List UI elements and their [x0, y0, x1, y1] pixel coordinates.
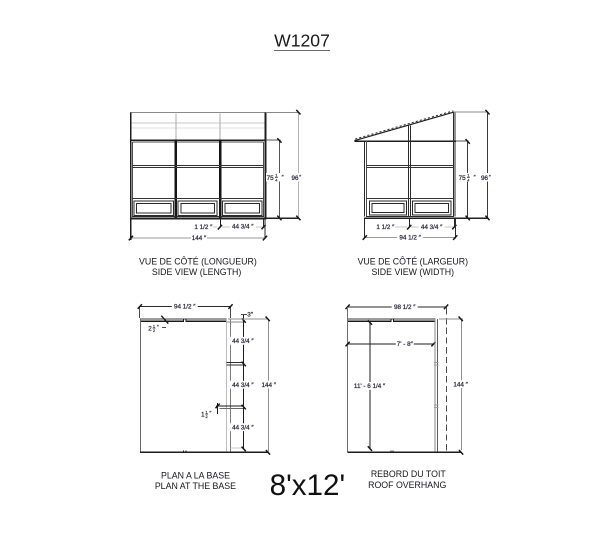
svg-text:11' - 6 1/4 ″: 11' - 6 1/4 ″: [354, 383, 386, 390]
svg-text:″: ″: [474, 175, 476, 181]
svg-text:″: ″: [299, 175, 301, 181]
svg-text:75: 75: [267, 175, 275, 182]
svg-text:2: 2: [148, 326, 152, 333]
svg-text:W1207: W1207: [274, 31, 330, 51]
svg-text:75: 75: [459, 175, 467, 182]
svg-text:96: 96: [481, 175, 489, 182]
svg-text:SIDE VIEW (LENGTH): SIDE VIEW (LENGTH): [152, 267, 242, 277]
svg-text:REBORD DU TOIT: REBORD DU TOIT: [371, 469, 447, 479]
svg-text:VUE DE CÔTÉ (LONGUEUR): VUE DE CÔTÉ (LONGUEUR): [139, 256, 257, 266]
svg-text:″: ″: [489, 175, 491, 181]
svg-text:1 1/2 ″: 1 1/2 ″: [194, 224, 213, 231]
svg-text:96: 96: [292, 175, 300, 182]
svg-text:7' - 8″: 7' - 8″: [397, 341, 414, 348]
svg-text:144 ″: 144 ″: [262, 382, 277, 389]
svg-text:VUE DE CÔTÉ (LARGEUR): VUE DE CÔTÉ (LARGEUR): [358, 256, 469, 266]
svg-text:144 ″: 144 ″: [453, 382, 468, 389]
svg-text:94 1/2 ″: 94 1/2 ″: [174, 304, 196, 311]
svg-text:3″: 3″: [247, 312, 254, 319]
svg-text:PLAN AT THE BASE: PLAN AT THE BASE: [155, 481, 236, 491]
svg-text:″: ″: [157, 325, 159, 331]
svg-text:SIDE VIEW (WIDTH): SIDE VIEW (WIDTH): [372, 267, 455, 277]
svg-text:ROOF OVERHANG: ROOF OVERHANG: [368, 480, 446, 490]
svg-text:1 1/2 ″: 1 1/2 ″: [376, 224, 395, 231]
svg-text:44 3/4 ″: 44 3/4 ″: [421, 224, 443, 231]
svg-text:44 3/4 ″: 44 3/4 ″: [232, 425, 254, 432]
svg-text:″: ″: [282, 175, 284, 181]
svg-text:98 1/2 ″: 98 1/2 ″: [394, 304, 416, 311]
svg-text:144 ″: 144 ″: [192, 235, 207, 242]
svg-text:44 3/4 ″: 44 3/4 ″: [232, 224, 254, 231]
svg-text:1: 1: [201, 412, 205, 419]
svg-text:44 3/4 ″: 44 3/4 ″: [232, 338, 254, 345]
svg-text:44 3/4 ″: 44 3/4 ″: [232, 382, 254, 389]
svg-text:94 1/2 ″: 94 1/2 ″: [399, 234, 421, 241]
svg-text:″: ″: [209, 411, 211, 417]
svg-text:PLAN A LA BASE: PLAN A LA BASE: [161, 470, 230, 480]
svg-text:8'x12': 8'x12': [270, 469, 345, 502]
